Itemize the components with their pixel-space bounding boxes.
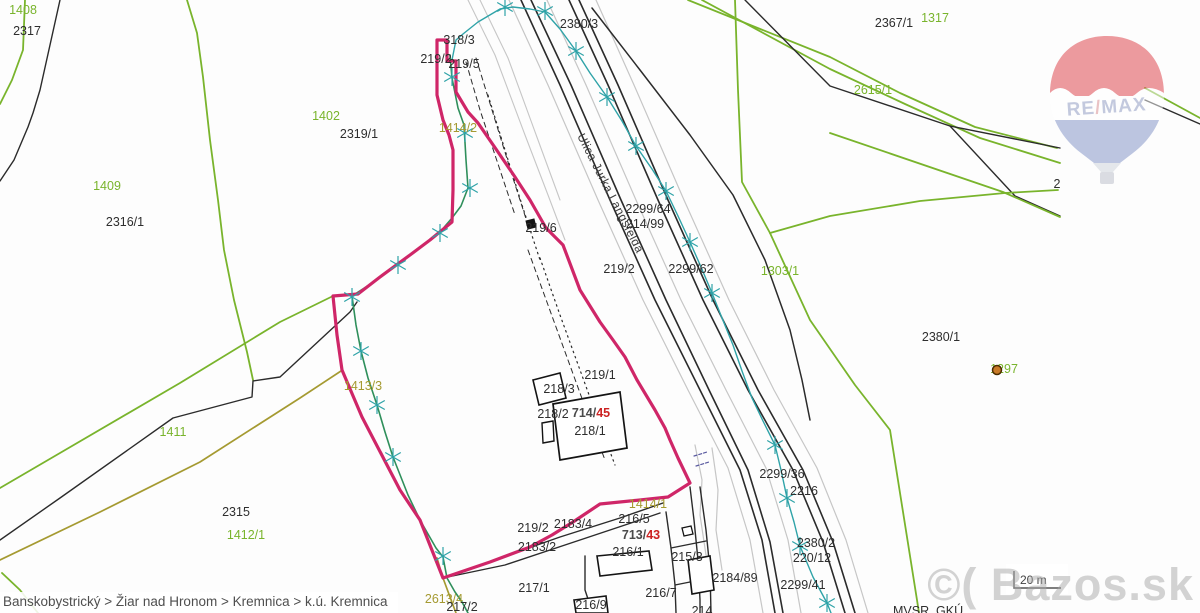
parcel-label: 2299/36 bbox=[759, 467, 804, 481]
parcel-label: 1408 bbox=[9, 3, 37, 17]
parcel-label: 318/3 bbox=[443, 33, 474, 47]
tree-marker-icon bbox=[819, 594, 835, 612]
boundary-line bbox=[0, 371, 341, 560]
bazos-watermark: ©( Bazos.sk bbox=[927, 562, 1194, 607]
parcel-label: 2367/1 bbox=[875, 16, 913, 30]
map-canvas: 2317140814022319/114092316/1318/3219/221… bbox=[0, 0, 1200, 613]
parcel-label: 2380/1 bbox=[922, 330, 960, 344]
parcel-label: 1414/2 bbox=[439, 121, 477, 135]
parcel-label: 219/6 bbox=[525, 221, 556, 235]
boundary-line bbox=[187, 0, 253, 380]
parcel-label: 2 bbox=[1054, 177, 1061, 191]
boundary-line bbox=[695, 445, 706, 555]
parcel-label: 216/7 bbox=[645, 586, 676, 600]
parcel-label: 1303/1 bbox=[761, 264, 799, 278]
parcel-label: 2315 bbox=[222, 505, 250, 519]
boundary-line bbox=[468, 0, 565, 240]
parcel-label: 218/2 bbox=[537, 407, 568, 421]
parcel-label: 2615/1 bbox=[854, 83, 892, 97]
parcel-label: 1402 bbox=[312, 109, 340, 123]
parcel-boundary-lines bbox=[0, 0, 1200, 613]
parcel-label: 2380/2 bbox=[797, 536, 835, 550]
parcel-label: 216/9 bbox=[575, 598, 606, 612]
parcel-label: 2317 bbox=[13, 24, 41, 38]
parcel-label: 2216 bbox=[790, 484, 818, 498]
parcel-label: 220/12 bbox=[793, 551, 831, 565]
parcel-label: 1412/1 bbox=[227, 528, 265, 542]
parcel-label: 2183/4 bbox=[554, 517, 592, 531]
parcel-label: 1414/1 bbox=[629, 497, 667, 511]
building-footprint bbox=[682, 526, 693, 536]
balloon-red-top bbox=[1044, 30, 1170, 96]
boundary-line bbox=[950, 126, 1060, 216]
parcel-label: 2299/41 bbox=[780, 578, 825, 592]
parcel-label: 219/2 bbox=[603, 262, 634, 276]
tree-marker-icon bbox=[344, 288, 360, 306]
breadcrumb: Banskobystrický > Žiar nad Hronom > Krem… bbox=[0, 592, 398, 613]
survey-point-dot bbox=[993, 366, 1002, 375]
balloon-basket bbox=[1100, 172, 1114, 184]
parcel-label: 216/5 bbox=[618, 512, 649, 526]
boundary-line bbox=[480, 0, 560, 200]
parcel-label: 1413/3 bbox=[344, 379, 382, 393]
boundary-line bbox=[735, 0, 770, 233]
boundary-line bbox=[671, 541, 706, 548]
parcel-label: 713/43 bbox=[622, 528, 660, 542]
parcel-label: 2316/1 bbox=[106, 215, 144, 229]
parcel-label: 2183/2 bbox=[518, 540, 556, 554]
parcel-label: 1411 bbox=[160, 425, 187, 439]
parcel-label: 2319/1 bbox=[340, 127, 378, 141]
boundary-line bbox=[712, 448, 722, 570]
parcel-label: 2380/3 bbox=[560, 17, 598, 31]
parcel-label: 216/1 bbox=[612, 545, 643, 559]
tree-marker-icon bbox=[767, 436, 783, 454]
parcel-label: 2184/89 bbox=[712, 571, 757, 585]
building-footprint bbox=[542, 421, 554, 443]
parcel-label: 217/1 bbox=[518, 581, 549, 595]
parcel-label: 1409 bbox=[93, 179, 121, 193]
parcel-label: 219/5 bbox=[448, 57, 479, 71]
parcel-label: 219/2 bbox=[517, 521, 548, 535]
tree-marker-icon bbox=[353, 342, 369, 360]
parcel-label: 2299/64 bbox=[625, 202, 670, 216]
parcel-label: 217/2 bbox=[446, 600, 477, 613]
parcel-label: 215/3 bbox=[671, 550, 702, 564]
parcel-label: 1317 bbox=[921, 11, 949, 25]
cadastral-map-screenshot: 2317140814022319/114092316/1318/3219/221… bbox=[0, 0, 1200, 613]
parcel-label: 2299/62 bbox=[668, 262, 713, 276]
boundary-line bbox=[0, 302, 357, 540]
boundary-line bbox=[0, 296, 333, 488]
parcel-label: 214 bbox=[692, 604, 713, 613]
parcel-label: 218/3 bbox=[543, 382, 574, 396]
remax-balloon-watermark: RE/MAX bbox=[1044, 30, 1170, 184]
balloon-cords bbox=[1093, 163, 1121, 172]
tree-marker-icon bbox=[369, 396, 385, 414]
parcel-label: 218/1 bbox=[574, 424, 605, 438]
survey-point bbox=[993, 366, 1002, 375]
parcel-label: 219/1 bbox=[584, 368, 615, 382]
tree-marker-icon bbox=[462, 179, 478, 197]
parcel-label: 219/2 bbox=[420, 52, 451, 66]
boundary-line bbox=[830, 133, 1060, 217]
parcel-label: 714/45 bbox=[572, 406, 610, 420]
